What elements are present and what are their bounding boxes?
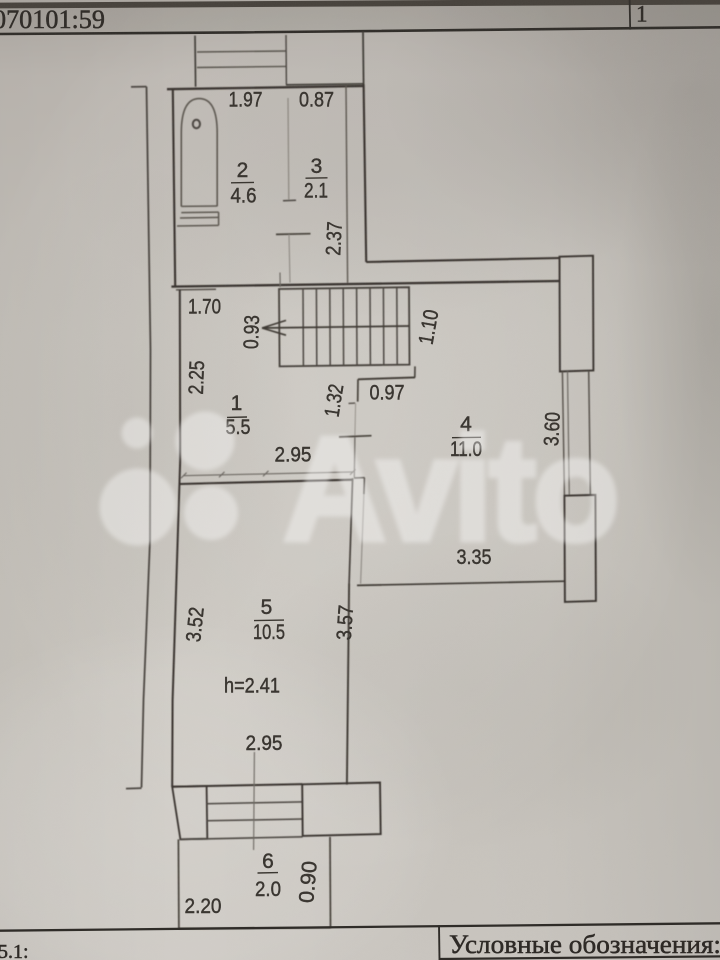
svg-text:Условные обозначения:: Условные обозначения: [449,930,720,959]
svg-text:5.1:: 5.1: [0,941,29,960]
svg-text:Avito: Avito [283,407,616,572]
